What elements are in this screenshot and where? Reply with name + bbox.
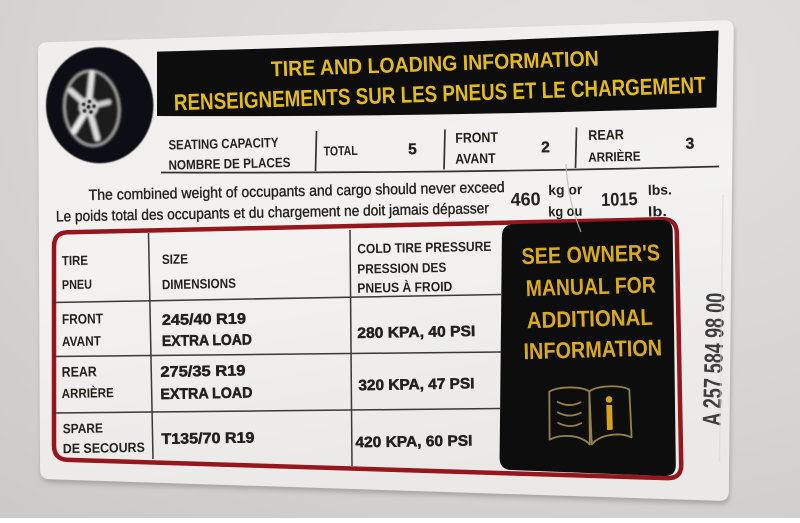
svg-text:3: 3 [685, 135, 694, 152]
svg-text:FRONT: FRONT [455, 129, 498, 146]
svg-text:320 KPA, 47 PSI: 320 KPA, 47 PSI [358, 375, 474, 394]
svg-text:AVANT: AVANT [62, 333, 102, 349]
svg-text:lb.: lb. [648, 203, 667, 219]
svg-text:2: 2 [541, 139, 550, 156]
svg-text:FRONT: FRONT [62, 310, 104, 327]
svg-text:DE SECOURS: DE SECOURS [63, 440, 145, 456]
svg-text:INFORMATION: INFORMATION [523, 334, 662, 364]
svg-text:REAR: REAR [62, 363, 97, 380]
svg-text:NOMBRE DE PLACES: NOMBRE DE PLACES [168, 155, 290, 173]
svg-text:SEATING CAPACITY: SEATING CAPACITY [168, 135, 278, 152]
svg-text:lbs.: lbs. [648, 181, 672, 198]
svg-text:DIMENSIONS: DIMENSIONS [162, 276, 236, 292]
svg-text:MANUAL FOR: MANUAL FOR [525, 271, 656, 301]
svg-text:A 257 584 98 00: A 257 584 98 00 [697, 292, 731, 426]
svg-text:SIZE: SIZE [162, 252, 188, 267]
svg-text:5: 5 [408, 141, 417, 158]
svg-text:EXTRA LOAD: EXTRA LOAD [162, 331, 252, 350]
svg-text:TOTAL: TOTAL [324, 143, 358, 159]
svg-text:COLD TIRE PRESSURE: COLD TIRE PRESSURE [357, 239, 491, 257]
svg-text:T135/70 R19: T135/70 R19 [161, 429, 254, 447]
svg-text:ARRIÈRE: ARRIÈRE [62, 385, 114, 401]
svg-text:275/35 R19: 275/35 R19 [160, 362, 245, 380]
svg-text:SEE OWNER'S: SEE OWNER'S [521, 239, 660, 269]
svg-text:SPARE: SPARE [63, 421, 103, 437]
svg-text:PRESSION DES: PRESSION DES [357, 260, 446, 277]
svg-text:EXTRA LOAD: EXTRA LOAD [160, 384, 252, 403]
svg-text:AVANT: AVANT [455, 150, 496, 167]
svg-text:kg ou: kg ou [548, 203, 582, 220]
svg-text:ADDITIONAL: ADDITIONAL [526, 304, 653, 334]
svg-text:TIRE: TIRE [62, 253, 88, 268]
svg-text:460: 460 [510, 188, 541, 210]
svg-text:PNEU: PNEU [62, 277, 92, 293]
svg-text:REAR: REAR [588, 126, 624, 143]
svg-text:245/40 R19: 245/40 R19 [162, 310, 246, 328]
svg-text:420 KPA, 60 PSI: 420 KPA, 60 PSI [355, 432, 472, 451]
svg-text:280 KPA, 40 PSI: 280 KPA, 40 PSI [357, 323, 475, 342]
svg-text:ARRIÈRE: ARRIÈRE [588, 149, 641, 165]
svg-text:kg or: kg or [548, 181, 583, 198]
svg-text:PNEUS À FROID: PNEUS À FROID [357, 279, 452, 296]
svg-text:1015: 1015 [601, 188, 638, 210]
